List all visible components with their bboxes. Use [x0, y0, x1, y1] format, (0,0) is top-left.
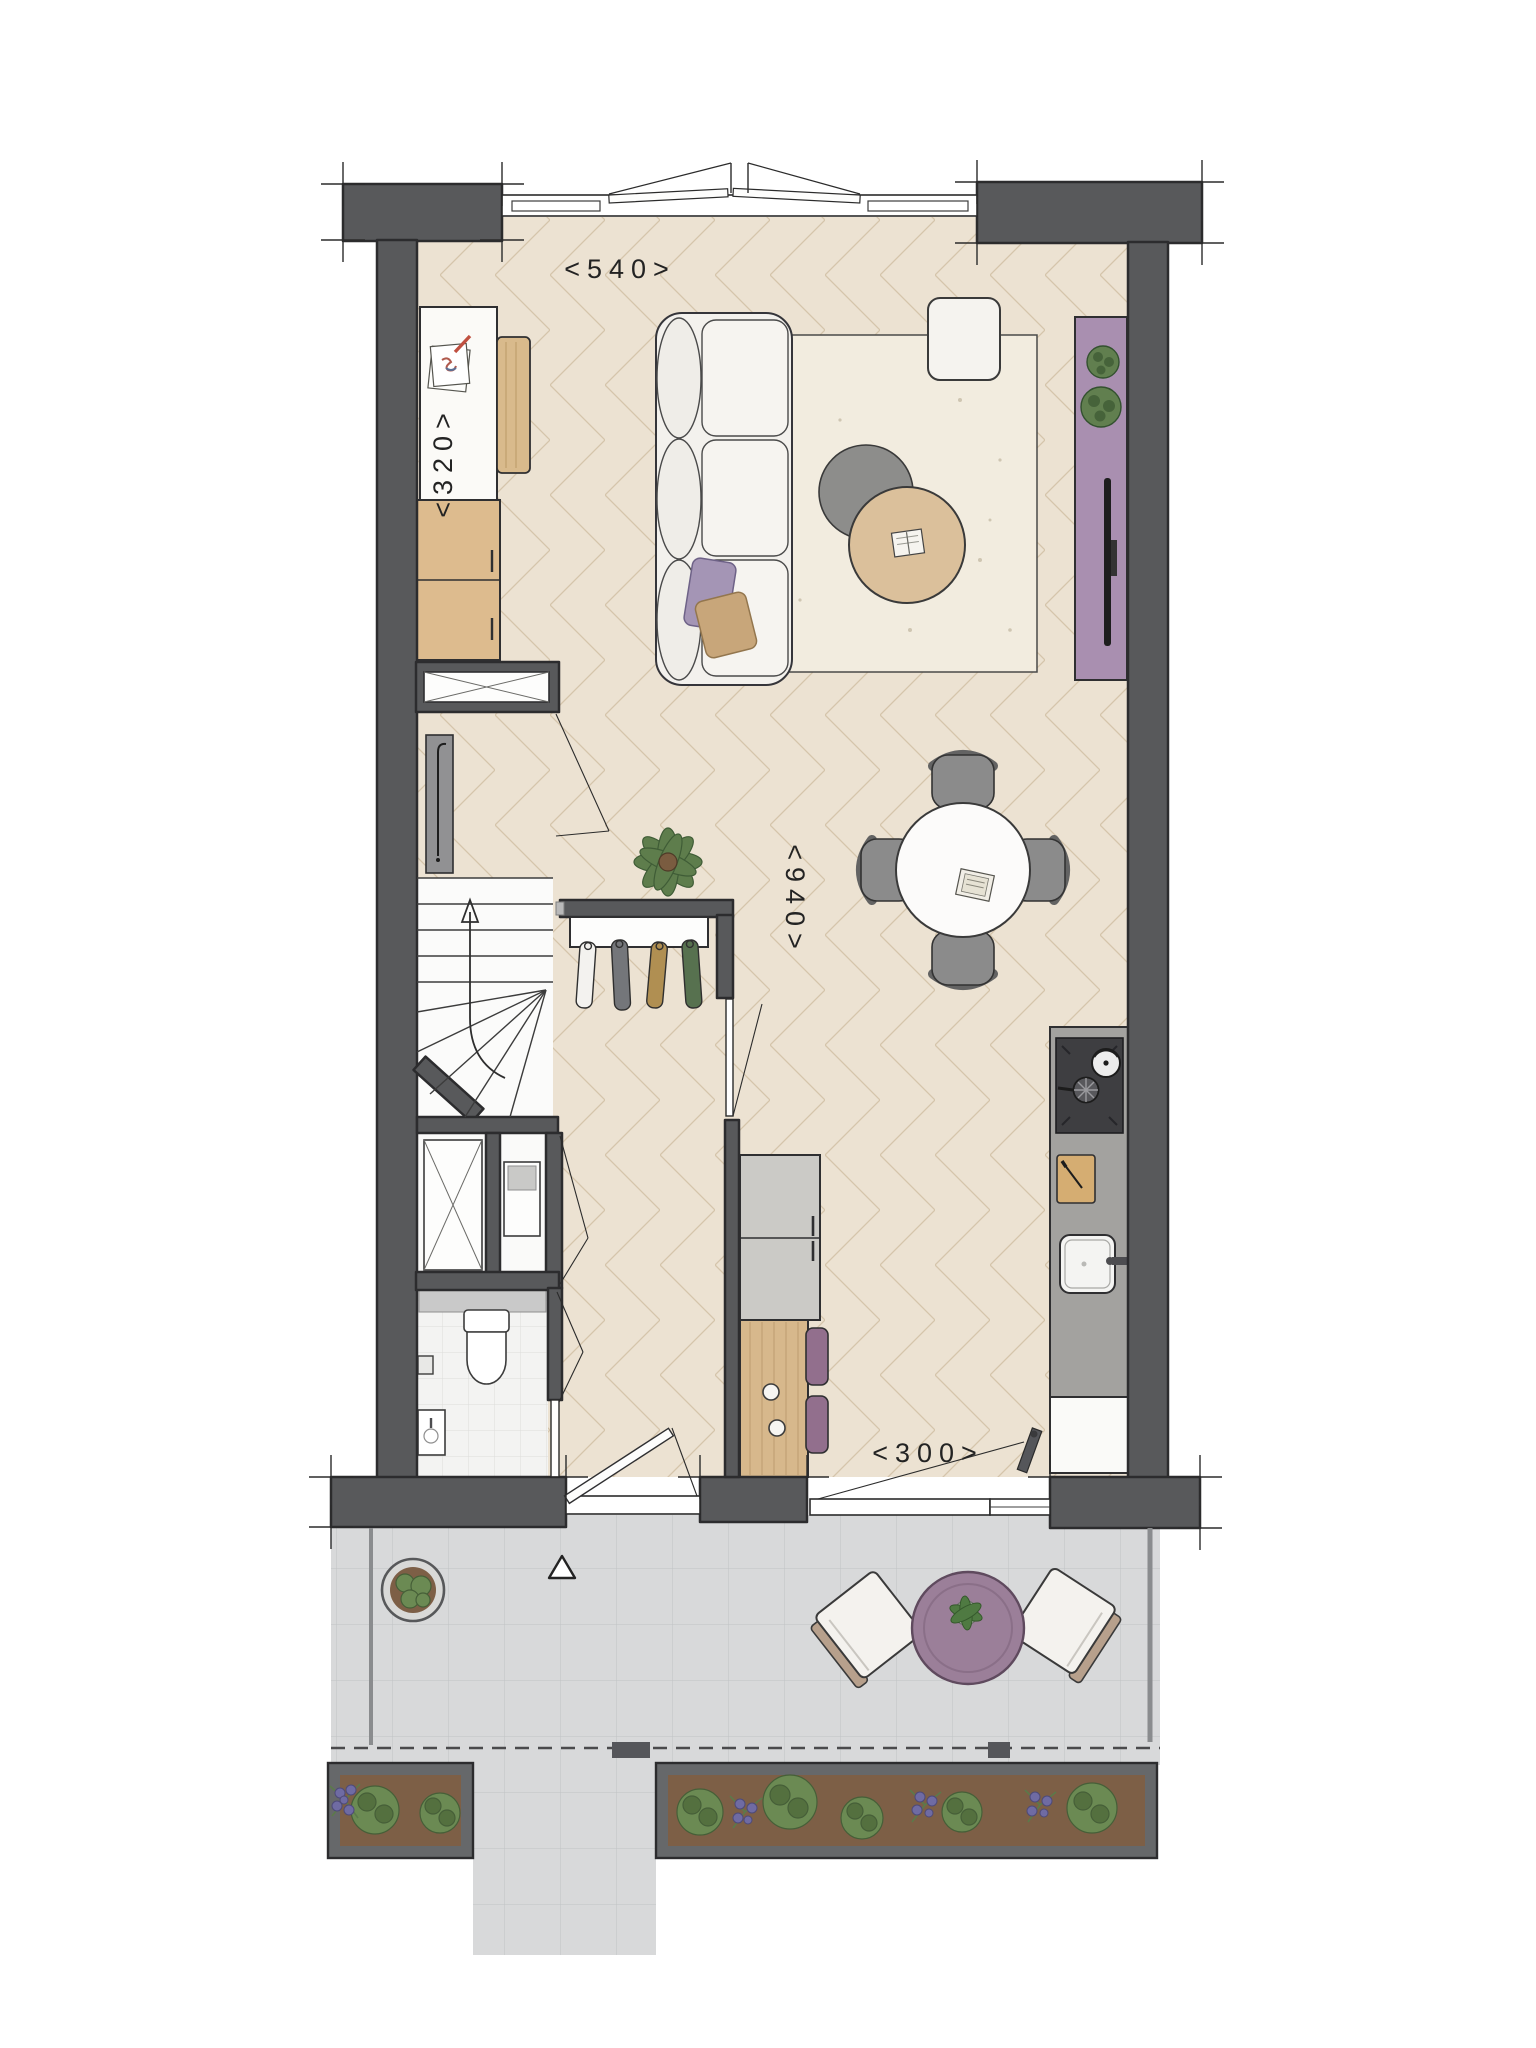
- facade-top: [502, 163, 977, 216]
- sideboard-plant-2: [1081, 387, 1121, 427]
- dimension-label-middle: <940>: [780, 844, 810, 956]
- hall-closet: [426, 735, 453, 873]
- faucet-icon: [1112, 1257, 1128, 1265]
- kitchen-tall-units: [740, 1155, 820, 1320]
- fence-post: [988, 1742, 1010, 1758]
- fence-post: [612, 1742, 650, 1758]
- tv-bracket: [1111, 540, 1117, 576]
- dining-chair-bottom: [932, 931, 994, 985]
- tv-screen: [1104, 478, 1111, 646]
- dining-chair-top: [932, 755, 994, 809]
- dishwasher: [1050, 1397, 1128, 1473]
- wall-kitchen-partition: [725, 1120, 739, 1477]
- hall-plant: [634, 828, 702, 896]
- kitchen-counter: [1050, 1027, 1128, 1473]
- terrace-path-tiles: [473, 1765, 656, 1955]
- wall-block-bottom-right: [1050, 1477, 1200, 1528]
- coffee-table-wood: [849, 487, 965, 603]
- wall-above-wc: [416, 1272, 559, 1290]
- wall-wc-right: [548, 1288, 562, 1400]
- wall-under-stairs: [417, 1117, 558, 1133]
- cooktop: [1056, 1038, 1123, 1133]
- toilet-roll-holder: [418, 1356, 433, 1374]
- magazine: [891, 529, 924, 557]
- terrace-table-set: [806, 1567, 1125, 1689]
- wall-coat-rack-stub: [717, 915, 733, 998]
- wall-left: [377, 240, 417, 1480]
- wc-cistern-shelf: [419, 1290, 546, 1312]
- wall-block-top-left: [343, 184, 502, 241]
- planter-box-left: [328, 1763, 473, 1858]
- tv-sideboard: [1075, 317, 1127, 680]
- storage-cabinet: [417, 500, 500, 660]
- dimension-label-bottom: <300>: [872, 1438, 984, 1468]
- coat-gray: [611, 940, 631, 1011]
- boiler-cabinet: [504, 1162, 540, 1236]
- bowl-icon: [769, 1420, 785, 1436]
- toilet: [464, 1310, 509, 1384]
- planter-box-right: [656, 1763, 1157, 1858]
- closet-door-panel: [426, 735, 453, 873]
- wall-hall-closet: [546, 1133, 562, 1288]
- ottoman: [928, 298, 1000, 380]
- hand-basin: [418, 1410, 445, 1455]
- dimension-label-top: <540>: [564, 254, 676, 284]
- dimension-label-left: <320>: [428, 406, 458, 518]
- terrace-table: [912, 1572, 1024, 1684]
- wall-coat-rack-top: [560, 900, 733, 917]
- bar-stool: [806, 1328, 828, 1385]
- window-left: [512, 201, 600, 211]
- french-doors: [609, 163, 860, 203]
- wall-right: [1128, 242, 1168, 1480]
- breakfast-bar: [740, 1320, 828, 1477]
- floor-plan-canvas: <540> <320> <940> <300>: [0, 0, 1536, 2048]
- door-handle-icon: [1031, 1431, 1038, 1438]
- cutting-board: [1057, 1155, 1095, 1203]
- sofa: [656, 313, 792, 685]
- wall-closet-divider: [486, 1133, 500, 1288]
- wall-block-bottom-middle: [700, 1477, 807, 1522]
- wall-block-bottom-left: [331, 1477, 566, 1527]
- window-right: [868, 201, 968, 211]
- floor-plan-drawing: <540> <320> <940> <300>: [0, 0, 1536, 2048]
- bar-stool: [806, 1396, 828, 1453]
- terrace-round-planter: [382, 1559, 444, 1621]
- desk-chair: [497, 337, 530, 473]
- wall-block-top-right: [977, 182, 1202, 243]
- sideboard-plant-1: [1087, 346, 1119, 378]
- bowl-icon: [763, 1384, 779, 1400]
